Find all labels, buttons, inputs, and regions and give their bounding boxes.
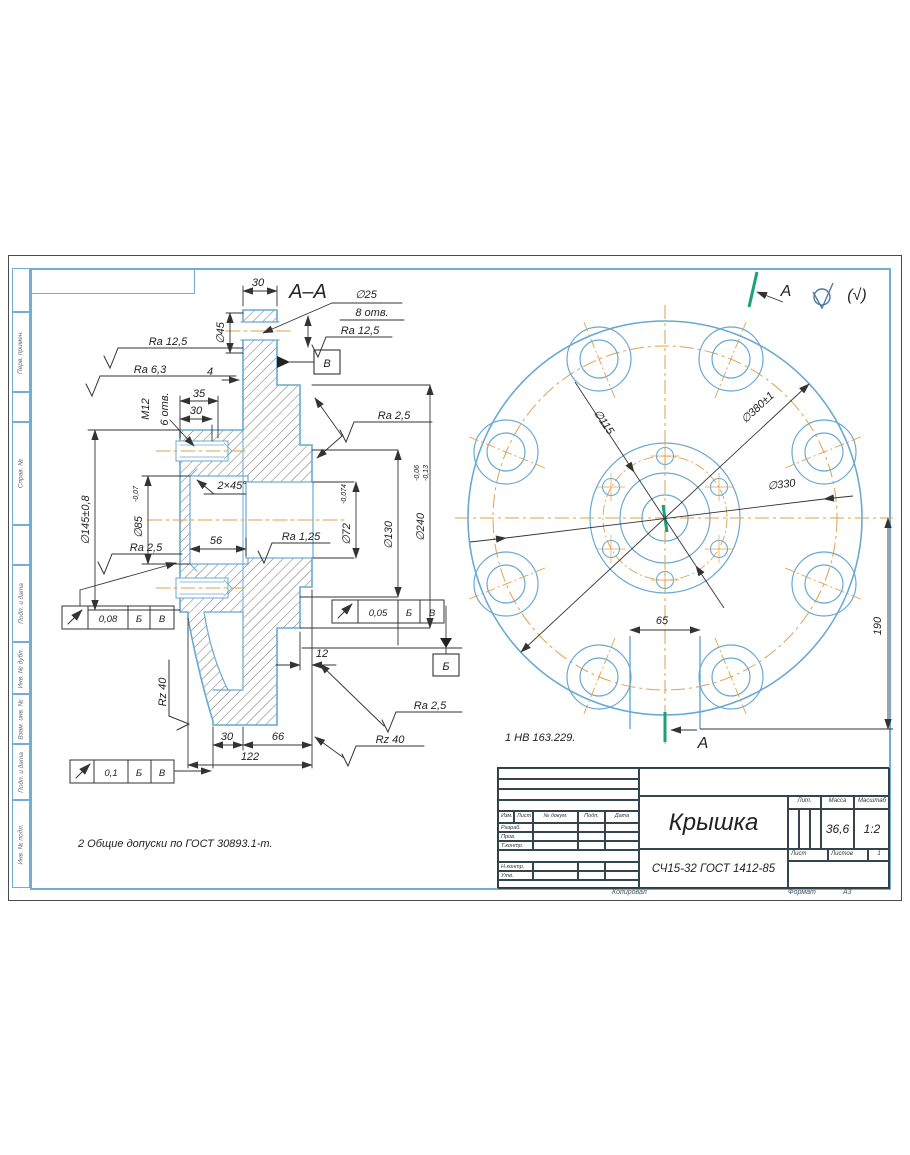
mass-header: Масса — [821, 796, 854, 809]
col-data: Дата — [605, 811, 639, 823]
svg-text:Ra 2,5: Ra 2,5 — [378, 410, 411, 422]
svg-text:Rz 40: Rz 40 — [376, 734, 406, 746]
svg-text:∅380±1: ∅380±1 — [739, 390, 777, 426]
sheets-cell: Листов — [828, 849, 868, 861]
svg-text:Rz 40: Rz 40 — [157, 677, 169, 707]
svg-text:Ra 2,5: Ra 2,5 — [130, 542, 163, 554]
svg-text:30: 30 — [190, 405, 203, 417]
svg-text:∅72: ∅72 — [341, 523, 353, 545]
front-view: ∅380±1 ∅115 ∅330 65 190 А А — [455, 272, 893, 752]
svg-text:8 отв.: 8 отв. — [355, 307, 388, 319]
svg-text:В: В — [429, 608, 436, 619]
section-letter-bottom: А — [697, 735, 709, 752]
svg-text:М12: М12 — [140, 398, 152, 419]
svg-text:Б: Б — [406, 608, 412, 619]
org-cell — [788, 861, 890, 889]
svg-text:∅130: ∅130 — [383, 520, 395, 549]
svg-text:30: 30 — [252, 277, 265, 289]
mass-value: 36,6 — [826, 822, 849, 836]
svg-text:∅45: ∅45 — [215, 321, 227, 344]
section-letter-top: А — [780, 283, 792, 300]
svg-text:Ra 1,25: Ra 1,25 — [282, 531, 321, 543]
svg-text:Б: Б — [136, 768, 142, 779]
svg-text:190: 190 — [872, 616, 884, 635]
scale-value-cell: 1:2 — [854, 809, 890, 849]
lit-header: Лит. — [788, 796, 821, 809]
note-tolerances: 2 Общие допуски по ГОСТ 30893.1-m. — [78, 838, 273, 850]
mass-value-cell: 36,6 — [821, 809, 854, 849]
row-razrab: Разраб. — [498, 823, 533, 832]
format-label: Формат — [788, 889, 816, 896]
svg-text:-0,06: -0,06 — [414, 465, 421, 481]
sheet-cell: Лист — [788, 849, 828, 861]
row-prov: Пров. — [498, 832, 533, 841]
svg-text:2×45°: 2×45° — [216, 480, 247, 492]
row-tkontr: Т.контр. — [498, 841, 533, 850]
title-block: Изм. Лист № докум. Подп. Дата Разраб. Пр… — [497, 767, 889, 888]
col-podp: Подп. — [578, 811, 605, 823]
svg-text:12: 12 — [316, 648, 328, 660]
scale-header: Масштаб — [854, 796, 890, 809]
drawing-views: В Б 0,08 Б В 0,05 Б В — [0, 0, 910, 1155]
material-cell: СЧ15-32 ГОСТ 1412-85 — [639, 849, 788, 889]
material: СЧ15-32 ГОСТ 1412-85 — [652, 863, 775, 875]
part-name: Крышка — [669, 809, 759, 837]
row-nkontr: Н.контр. — [498, 862, 533, 871]
svg-text:35: 35 — [193, 388, 206, 400]
svg-text:0,05: 0,05 — [369, 608, 388, 619]
svg-text:∅85: ∅85 — [133, 515, 145, 538]
svg-text:56: 56 — [210, 535, 223, 547]
svg-text:∅25: ∅25 — [355, 289, 378, 301]
designation-cell — [639, 768, 890, 796]
datum-v-label: В — [323, 358, 330, 370]
col-izm: Изм. — [498, 811, 514, 823]
tolerance-frame-008: 0,08 Б В — [62, 606, 174, 629]
svg-text:∅330: ∅330 — [767, 477, 797, 492]
corner-roughness-paren: (√) — [847, 287, 866, 304]
svg-text:66: 66 — [272, 731, 285, 743]
svg-text:Ra 12,5: Ra 12,5 — [341, 325, 380, 337]
svg-text:30: 30 — [221, 731, 234, 743]
svg-text:-0,13: -0,13 — [423, 465, 430, 481]
svg-text:-0,07: -0,07 — [133, 485, 140, 502]
svg-text:Ra 12,5: Ra 12,5 — [149, 336, 188, 348]
scale-value: 1:2 — [864, 822, 881, 836]
corner-roughness-mark: (√) — [813, 283, 867, 308]
drawing-sheet: Перв. примен. Справ. № Подп. и дата Инв.… — [0, 0, 910, 1155]
svg-text:6 отв.: 6 отв. — [159, 392, 171, 425]
svg-text:Ra 6,3: Ra 6,3 — [134, 364, 167, 376]
svg-text:∅240: ∅240 — [415, 512, 427, 541]
col-list: Лист — [514, 811, 533, 823]
copied-label: Копировал — [612, 889, 647, 896]
svg-text:Ra 2,5: Ra 2,5 — [414, 700, 447, 712]
part-name-cell: Крышка — [639, 796, 788, 849]
svg-text:-0,074: -0,074 — [341, 484, 348, 504]
row-utv: Утв. — [498, 871, 533, 880]
datum-b-label: Б — [442, 661, 449, 673]
tolerance-frame-005: 0,05 Б В — [332, 600, 444, 623]
svg-text:0,1: 0,1 — [104, 768, 117, 779]
svg-text:∅145±0,8: ∅145±0,8 — [80, 494, 92, 544]
format-value: А3 — [843, 889, 852, 896]
svg-text:4: 4 — [207, 366, 213, 378]
svg-text:0,08: 0,08 — [99, 614, 118, 625]
sheets-value-cell: 1 — [868, 849, 890, 861]
note-hardness: 1 НВ 163.229. — [505, 732, 575, 744]
svg-text:Б: Б — [136, 614, 142, 625]
svg-text:∅115: ∅115 — [591, 408, 617, 438]
section-title: А–А — [288, 281, 327, 303]
svg-text:В: В — [159, 614, 166, 625]
svg-text:122: 122 — [241, 751, 259, 763]
svg-text:В: В — [159, 768, 166, 779]
section-view: В Б 0,08 Б В 0,05 Б В — [62, 277, 462, 783]
col-doc: № докум. — [533, 811, 578, 823]
svg-text:65: 65 — [656, 615, 669, 627]
tolerance-frame-01: 0,1 Б В — [70, 760, 174, 783]
